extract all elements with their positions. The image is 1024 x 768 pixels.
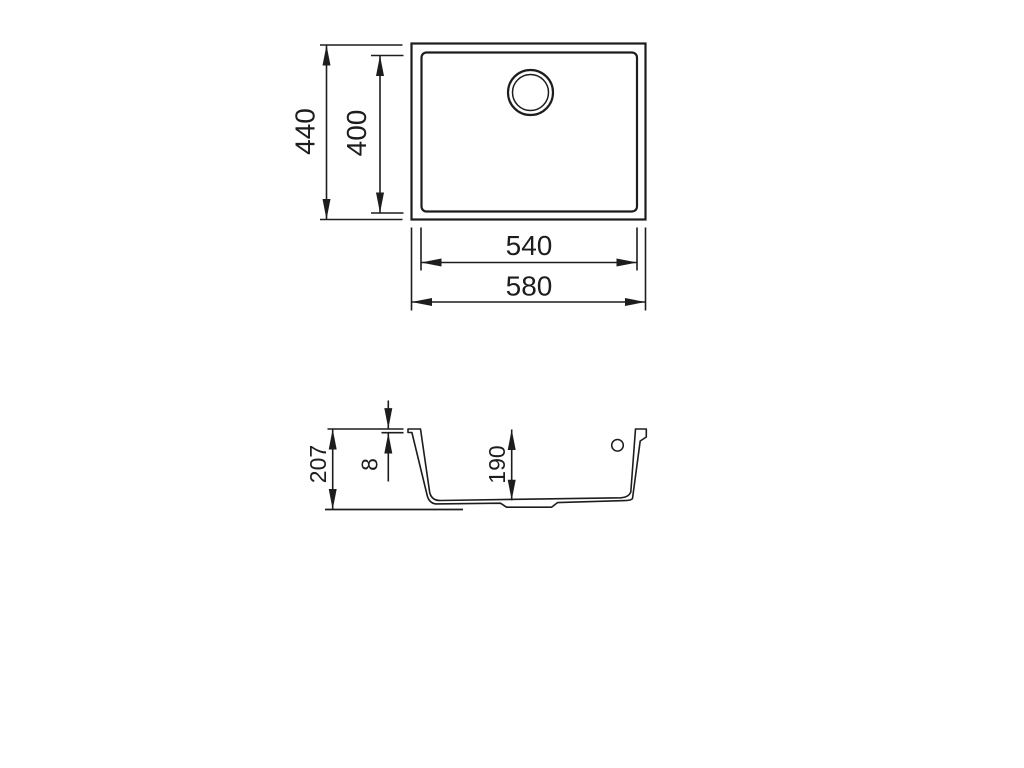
section-view: 207 8 190 — [305, 401, 646, 510]
dim-bowl-height: 400 — [341, 56, 404, 214]
dim-bowl-depth: 190 — [484, 430, 512, 501]
technical-drawing-page: 440 400 540 580 — [0, 0, 1024, 768]
drain-inner-circle — [513, 75, 549, 111]
dim-label-bowl-height: 400 — [341, 110, 372, 157]
dim-label-bowl-width: 540 — [506, 230, 553, 261]
sink-section-profile — [408, 429, 646, 507]
overflow-hole — [612, 440, 624, 452]
dim-label-outer-height: 440 — [290, 108, 321, 155]
dim-label-rim-thickness: 8 — [357, 458, 383, 471]
sink-bowl-rect — [422, 53, 638, 212]
dim-label-bowl-depth: 190 — [484, 445, 510, 483]
sink-dimension-drawing: 440 400 540 580 — [0, 0, 1024, 768]
dim-label-total-depth: 207 — [305, 445, 331, 483]
dim-label-outer-width: 580 — [506, 271, 553, 302]
dim-bowl-width: 540 — [421, 228, 637, 271]
dim-rim-thickness: 8 — [357, 401, 404, 482]
drain-outer-circle — [508, 70, 553, 115]
top-view: 440 400 540 580 — [290, 44, 646, 311]
